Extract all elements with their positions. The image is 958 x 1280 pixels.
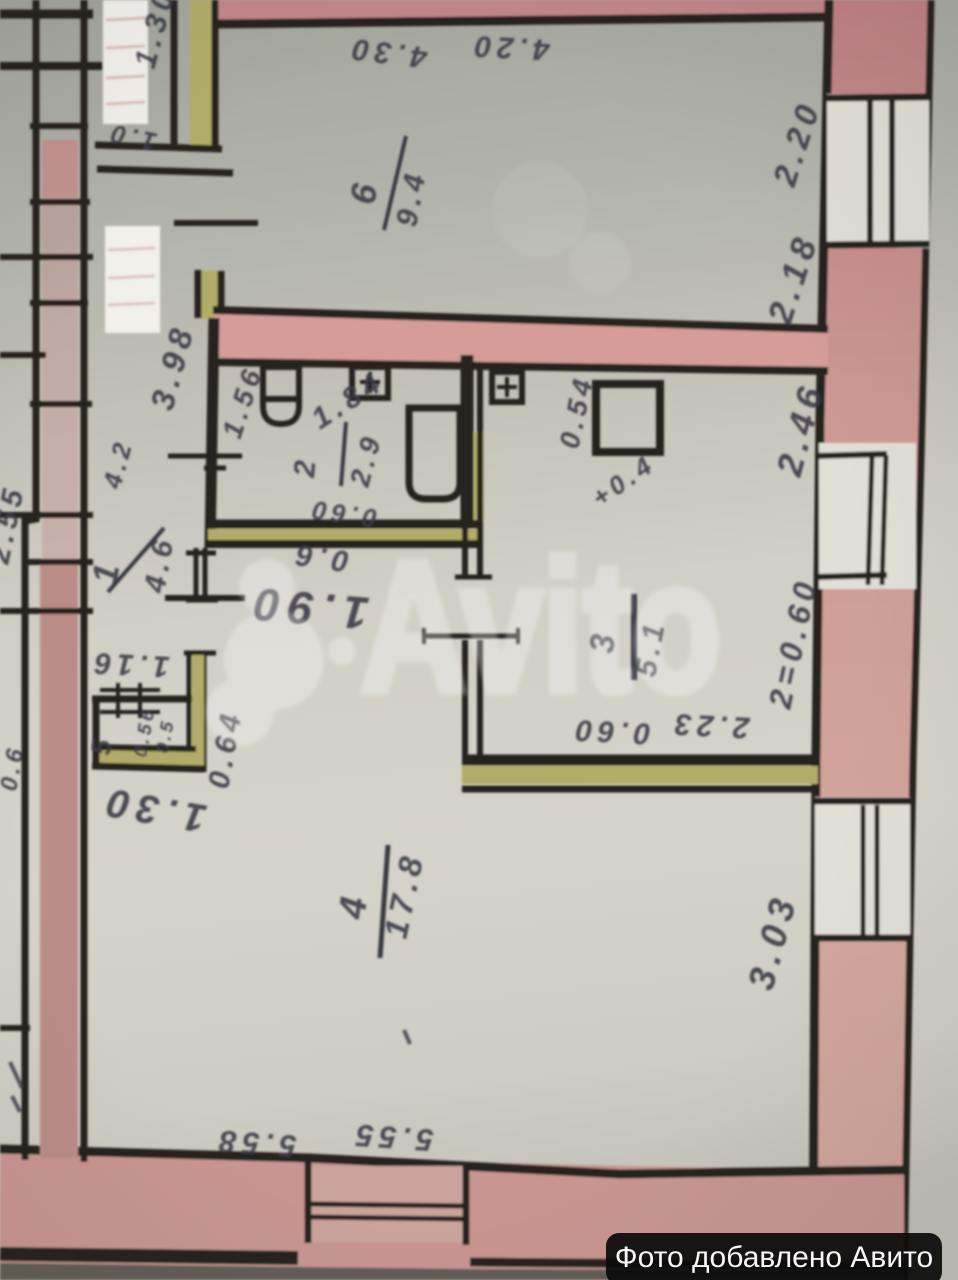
svg-text:Avito: Avito [361, 524, 721, 730]
